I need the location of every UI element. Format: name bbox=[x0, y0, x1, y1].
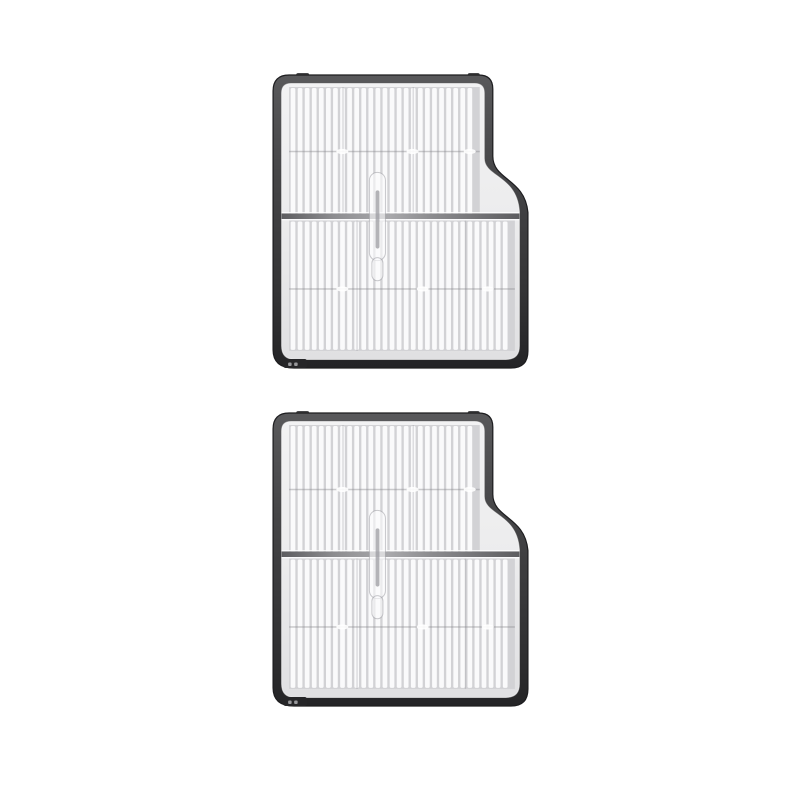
hepa-filter-illustration bbox=[272, 74, 528, 369]
filter-center-clip bbox=[369, 172, 385, 280]
product-image-hepa-filter-2 bbox=[272, 412, 528, 707]
product-photo-canvas bbox=[0, 0, 790, 790]
product-image-hepa-filter-1 bbox=[272, 74, 528, 369]
hepa-filter-illustration bbox=[272, 412, 528, 707]
frame-latch bbox=[283, 359, 307, 368]
filter-center-clip bbox=[369, 510, 385, 618]
frame-latch bbox=[283, 697, 307, 706]
